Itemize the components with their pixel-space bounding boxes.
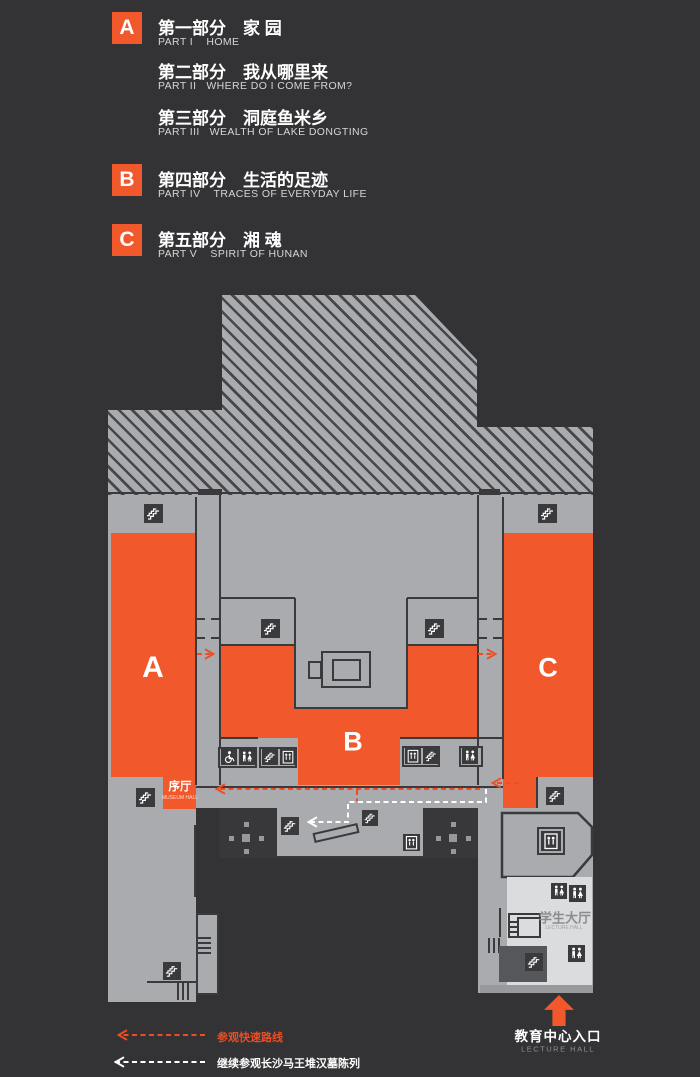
student-hall-label-en: LECTURE HALL <box>545 925 582 931</box>
student-hall-label-zh: 学生大厅 <box>539 908 591 927</box>
continue-route-legend-label: 继续参观长沙马王堆汉墓陈列 <box>217 1055 360 1071</box>
entrance-label-zh: 教育中心入口 <box>515 1025 602 1045</box>
zone-b-label: B <box>343 727 363 758</box>
entrance-label-en: LECTURE HALL <box>521 1045 595 1054</box>
museum-hall-label-zh: 序厅 <box>169 778 192 794</box>
floor-plan-infographic: A 第一部分 家 园 PART I HOME 第二部分 我从哪里来 PART I… <box>0 0 700 1077</box>
museum-hall-label-en: MUSEUM HALL <box>162 795 198 801</box>
zone-c-label: C <box>538 653 558 684</box>
continue-route-line <box>311 789 486 822</box>
quick-route-legend-label: 参观快速路线 <box>217 1029 283 1045</box>
zone-a-label: A <box>142 651 164 685</box>
route-lines <box>0 0 700 1077</box>
